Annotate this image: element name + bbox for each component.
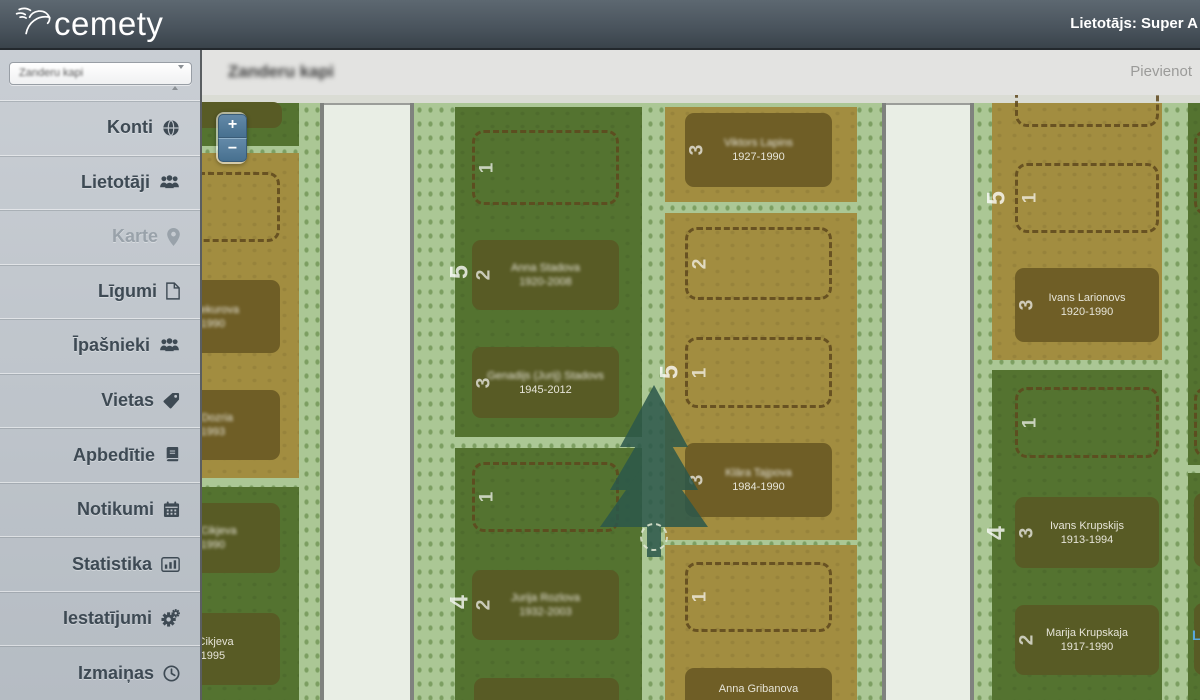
plot[interactable]: 3Ivans Larionovs1920-1990 bbox=[1015, 268, 1159, 342]
bar-chart-icon bbox=[161, 557, 180, 572]
add-link[interactable]: Pievienot bbox=[1130, 48, 1192, 95]
plot-label: Anna Gribanova bbox=[685, 668, 832, 700]
plot-label: Ivans Krupskijs1913-1994 bbox=[1015, 497, 1159, 568]
sidebar-item-notikumi[interactable]: Notikumi bbox=[0, 482, 200, 537]
sidebar-item-apbeditie[interactable]: Apbedītie bbox=[0, 427, 200, 482]
section-number: 5 bbox=[446, 265, 475, 279]
book-icon bbox=[164, 447, 180, 463]
sidebar-item-statistika[interactable]: Statistika bbox=[0, 536, 200, 591]
clock-icon bbox=[163, 665, 180, 682]
plot-number: 1 bbox=[1019, 417, 1041, 428]
zoom-out-button[interactable]: − bbox=[218, 138, 247, 162]
zoom-in-button[interactable]: + bbox=[218, 114, 247, 138]
sidebar: Zanderu kapi Konti Lietotāji Karte bbox=[0, 48, 200, 700]
sidebar-item-vietas[interactable]: Vietas bbox=[0, 373, 200, 428]
plot-label: Marija Krupskaja1917-1990 bbox=[1015, 605, 1159, 675]
plot[interactable]: 2Anna Stadova1920-2008 bbox=[472, 240, 619, 310]
plot-label: a Cikjeva-1995 bbox=[202, 613, 280, 685]
plot[interactable]: Anna Gribanova bbox=[685, 668, 832, 700]
plot-label: Jurija Rozlova1932-2003 bbox=[472, 570, 619, 640]
page-title: Zanderu kapi bbox=[228, 48, 334, 95]
plot[interactable] bbox=[1194, 493, 1200, 567]
main-area: Zanderu kapi Pievienot a Čekurova-1990fa… bbox=[200, 48, 1200, 700]
plot[interactable]: 3Ivans Krupskijs1913-1994 bbox=[1015, 497, 1159, 568]
plot[interactable] bbox=[1194, 130, 1200, 215]
plot[interactable]: fa Dozria-1993 bbox=[202, 390, 280, 460]
plot-label: a Čekurova-1990 bbox=[202, 280, 280, 353]
select-arrows-icon bbox=[172, 69, 184, 87]
plot-number: 1 bbox=[1019, 193, 1041, 204]
gears-icon bbox=[161, 609, 180, 628]
plot-number: 1 bbox=[476, 162, 498, 173]
zoom-control: + − bbox=[216, 112, 247, 164]
plot[interactable] bbox=[1194, 387, 1200, 458]
plot-label: na Cikjeva-1990 bbox=[202, 503, 280, 573]
calendar-icon bbox=[163, 501, 180, 518]
section-number: 5 bbox=[983, 191, 1012, 205]
plot[interactable] bbox=[474, 678, 619, 700]
cemetery-select[interactable]: Zanderu kapi bbox=[9, 62, 192, 85]
plot-number: 1 bbox=[689, 367, 711, 378]
plot[interactable]: 1 bbox=[472, 130, 619, 205]
sidebar-item-lietotaji[interactable]: Lietotāji bbox=[0, 155, 200, 210]
users-icon bbox=[159, 338, 180, 353]
users-icon bbox=[159, 175, 180, 190]
plot[interactable] bbox=[1015, 95, 1159, 127]
plot[interactable] bbox=[202, 172, 280, 242]
section-number: 5 bbox=[656, 365, 685, 379]
plot[interactable]: 2 bbox=[685, 227, 832, 300]
document-icon bbox=[166, 282, 180, 300]
plot[interactable]: 1 bbox=[1015, 387, 1159, 458]
section-number: 4 bbox=[446, 595, 475, 609]
plot[interactable]: a Cikjeva-1995 bbox=[202, 613, 280, 685]
sidebar-item-konti[interactable]: Konti bbox=[0, 100, 200, 155]
tree-marker[interactable] bbox=[594, 385, 714, 565]
sidebar-menu: Konti Lietotāji Karte Līgu bbox=[0, 100, 200, 700]
plot-label: Viktors Lapins1927-1990 bbox=[685, 113, 832, 187]
cemetery-map[interactable]: a Čekurova-1990fa Dozria-1993na Cikjeva-… bbox=[202, 95, 1200, 700]
app-logo[interactable]: cemety bbox=[14, 2, 163, 46]
plot-label: Ivans Larionovs1920-1990 bbox=[1015, 268, 1159, 342]
sidebar-item-ligumi[interactable]: Līgumi bbox=[0, 264, 200, 319]
plot[interactable]: a Čekurova-1990 bbox=[202, 280, 280, 353]
plot[interactable]: 1 bbox=[685, 562, 832, 632]
plot[interactable]: na Cikjeva-1990 bbox=[202, 503, 280, 573]
plot-label: fa Dozria-1993 bbox=[202, 390, 280, 460]
plot[interactable]: 2Marija Krupskaja1917-1990 bbox=[1015, 605, 1159, 675]
plot-label: Anna Stadova1920-2008 bbox=[472, 240, 619, 310]
user-label: Lietotājs: Super A bbox=[1070, 15, 1198, 32]
plot[interactable]: 3Viktors Lapins1927-1990 bbox=[685, 113, 832, 187]
sidebar-item-karte[interactable]: Karte bbox=[0, 209, 200, 264]
sidebar-item-izmainas[interactable]: Izmaiņas bbox=[0, 645, 200, 700]
plot-number: 1 bbox=[476, 492, 498, 503]
map-edge-label: L bbox=[1192, 627, 1200, 643]
map-pin-icon bbox=[167, 228, 180, 246]
sidebar-item-ipasnieki[interactable]: Īpašnieki bbox=[0, 318, 200, 373]
section-number: 4 bbox=[983, 526, 1012, 540]
plot[interactable]: 2Jurija Rozlova1932-2003 bbox=[472, 570, 619, 640]
globe-icon bbox=[162, 119, 180, 137]
dove-icon bbox=[14, 6, 52, 42]
sidebar-item-iestatijumi[interactable]: Iestatījumi bbox=[0, 591, 200, 646]
logo-text: cemety bbox=[54, 2, 163, 46]
plot[interactable]: 1 bbox=[1015, 163, 1159, 233]
plot-number: 1 bbox=[689, 592, 711, 603]
app-header: cemety Lietotājs: Super A bbox=[0, 0, 1200, 50]
map-toolbar: Zanderu kapi Pievienot bbox=[202, 48, 1200, 96]
plot-number: 2 bbox=[689, 258, 711, 269]
cemetery-select-value: Zanderu kapi bbox=[19, 63, 83, 84]
tag-icon bbox=[163, 392, 180, 409]
